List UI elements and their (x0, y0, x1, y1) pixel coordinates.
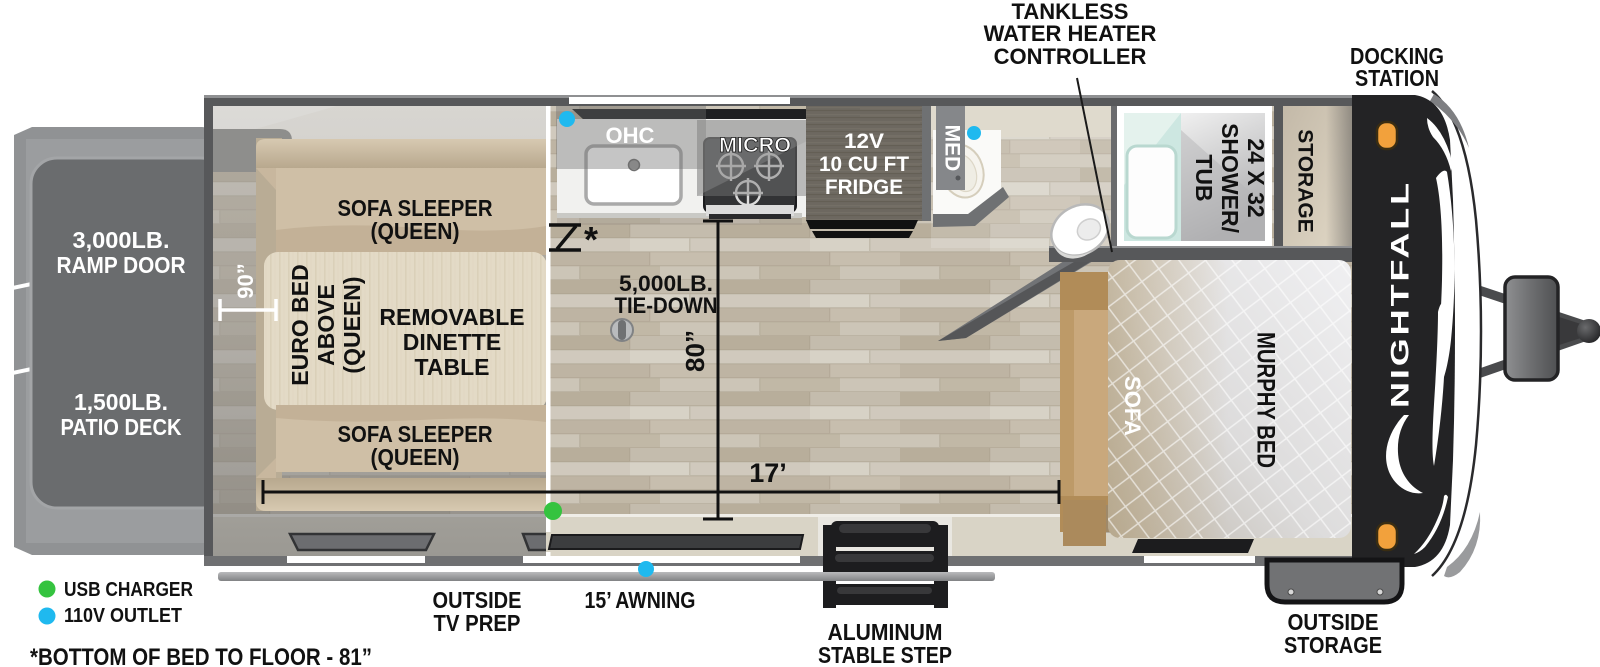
svg-text:PATIO DECK: PATIO DECK (61, 414, 182, 440)
svg-text:STABLE STEP: STABLE STEP (818, 642, 952, 667)
svg-text:REMOVABLE: REMOVABLE (379, 304, 524, 330)
svg-text:MED: MED (940, 125, 963, 172)
svg-text:DINETTE: DINETTE (403, 329, 501, 355)
svg-text:1,500LB.: 1,500LB. (74, 389, 168, 415)
svg-text:TV PREP: TV PREP (434, 610, 521, 636)
svg-text:SOFA: SOFA (1120, 376, 1145, 436)
svg-text:TUB: TUB (1191, 154, 1217, 201)
svg-text:10 CU FT: 10 CU FT (819, 153, 909, 176)
svg-text:TABLE: TABLE (415, 354, 490, 380)
svg-text:SHOWER/: SHOWER/ (1217, 123, 1243, 234)
svg-text:90”: 90” (233, 263, 258, 298)
svg-text:USB CHARGER: USB CHARGER (64, 579, 193, 601)
svg-text:(QUEEN): (QUEEN) (371, 444, 460, 470)
svg-text:OHC: OHC (606, 123, 655, 148)
svg-text:NIGHTFALL: NIGHTFALL (1387, 180, 1415, 408)
svg-text:24 X 32: 24 X 32 (1243, 138, 1269, 217)
svg-text:MURPHY BED: MURPHY BED (1251, 332, 1279, 468)
svg-text:CONTROLLER: CONTROLLER (994, 44, 1147, 69)
svg-text:15’ AWNING: 15’ AWNING (585, 587, 696, 613)
svg-text:*BOTTOM OF BED TO FLOOR - 81”: *BOTTOM OF BED TO FLOOR - 81” (30, 644, 372, 667)
svg-text:*: * (584, 219, 598, 260)
svg-text:WATER HEATER: WATER HEATER (984, 21, 1157, 46)
svg-text:17’: 17’ (749, 458, 787, 488)
svg-text:RAMP DOOR: RAMP DOOR (57, 252, 186, 278)
svg-text:STORAGE: STORAGE (1284, 632, 1382, 658)
svg-text:3,000LB.: 3,000LB. (73, 227, 170, 253)
svg-text:(QUEEN): (QUEEN) (371, 218, 460, 244)
svg-text:TIE-DOWN: TIE-DOWN (615, 293, 718, 318)
svg-text:FRIDGE: FRIDGE (825, 176, 903, 199)
svg-text:80”: 80” (680, 330, 710, 372)
svg-text:110V OUTLET: 110V OUTLET (64, 605, 182, 627)
svg-text:MICRO: MICRO (719, 134, 791, 157)
svg-text:12V: 12V (844, 130, 884, 153)
svg-text:STORAGE: STORAGE (1293, 129, 1316, 232)
svg-text:STATION: STATION (1355, 65, 1439, 91)
